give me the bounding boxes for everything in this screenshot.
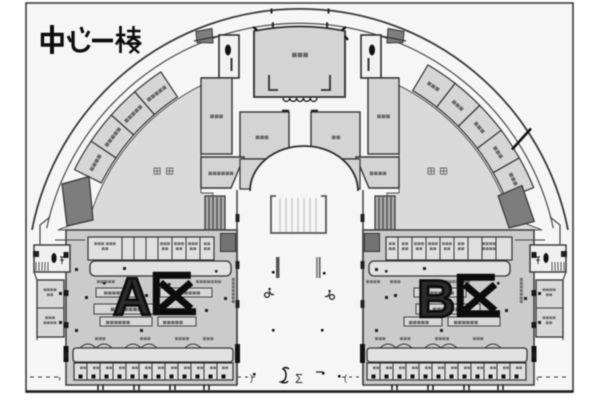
svg-text:B: B: [417, 270, 455, 329]
svg-text:): ): [250, 373, 253, 383]
svg-text:‹: ‹: [536, 373, 539, 383]
svg-text:A: A: [113, 268, 151, 327]
svg-text:Σ: Σ: [295, 371, 303, 386]
svg-text:(: (: [344, 373, 347, 383]
svg-text:›: ›: [58, 373, 61, 383]
